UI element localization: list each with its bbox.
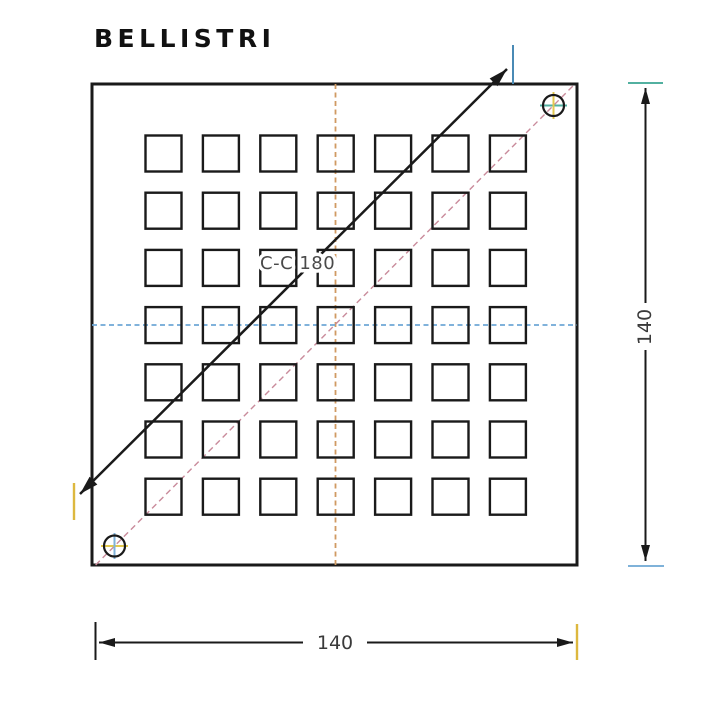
section-label: C-C 180 bbox=[260, 253, 335, 274]
height-dimension: 140 bbox=[628, 83, 664, 566]
drawing-sheet: BELLISTRI bbox=[0, 0, 720, 720]
technical-drawing: 140 140 C-C 180 bbox=[0, 0, 720, 720]
width-dim-label: 140 bbox=[317, 632, 353, 654]
width-dimension: 140 bbox=[96, 622, 578, 660]
height-dim-label: 140 bbox=[634, 309, 656, 345]
